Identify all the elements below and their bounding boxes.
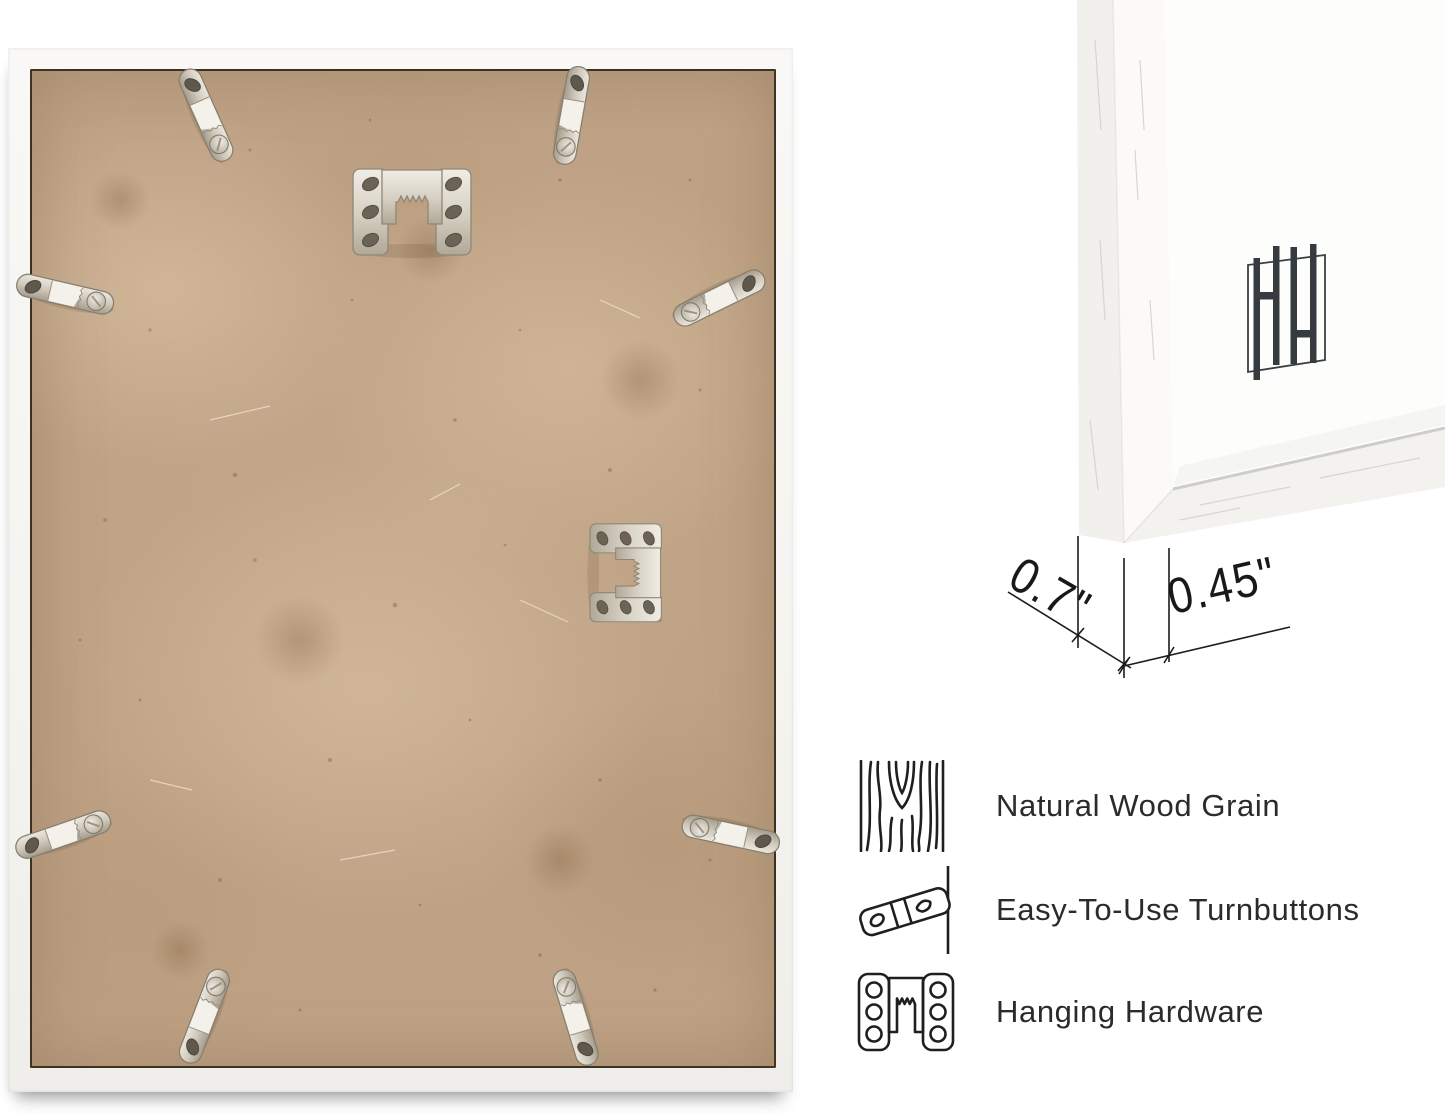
frame-corner-photo — [1077, 0, 1445, 543]
product-infographic: 0.7" 0.45" Natural Wood Grain — [0, 0, 1445, 1114]
dimension-depth: 0.7" — [1000, 546, 1101, 637]
turnbutton-icon — [856, 860, 966, 960]
feature-turnbuttons: Easy-To-Use Turnbuttons — [856, 862, 966, 958]
sawtooth-hanger-horizontal — [353, 169, 471, 258]
photo-overlay: 0.7" 0.45" — [0, 0, 1445, 1114]
dimension-depth-label: 0.7" — [1000, 546, 1101, 637]
turnbutton-left-lower — [13, 807, 116, 864]
turnbutton-right-upper — [668, 263, 769, 330]
feature-wood-grain: Natural Wood Grain — [856, 758, 948, 854]
turnbutton-right-lower — [679, 810, 782, 856]
hanging-hardware-icon — [856, 966, 956, 1058]
corner-mat — [1164, 0, 1445, 487]
dimension-line-face — [1124, 627, 1290, 666]
feature-label: Hanging Hardware — [996, 994, 1264, 1030]
feature-label: Easy-To-Use Turnbuttons — [996, 892, 1360, 928]
turnbutton-bottom-left — [176, 965, 236, 1068]
turnbutton-top-right — [548, 64, 591, 167]
dimension-face: 0.45" — [1162, 545, 1282, 625]
sawtooth-hanger-vertical — [587, 524, 661, 622]
wood-grain-icon — [856, 760, 948, 852]
turnbutton-left-upper — [14, 272, 117, 320]
turnbutton-top-left — [173, 65, 237, 167]
feature-label: Natural Wood Grain — [996, 788, 1280, 824]
turnbutton-bottom-right — [550, 965, 604, 1068]
dimension-face-label: 0.45" — [1162, 545, 1282, 625]
feature-hanging-hardware: Hanging Hardware — [856, 964, 956, 1060]
